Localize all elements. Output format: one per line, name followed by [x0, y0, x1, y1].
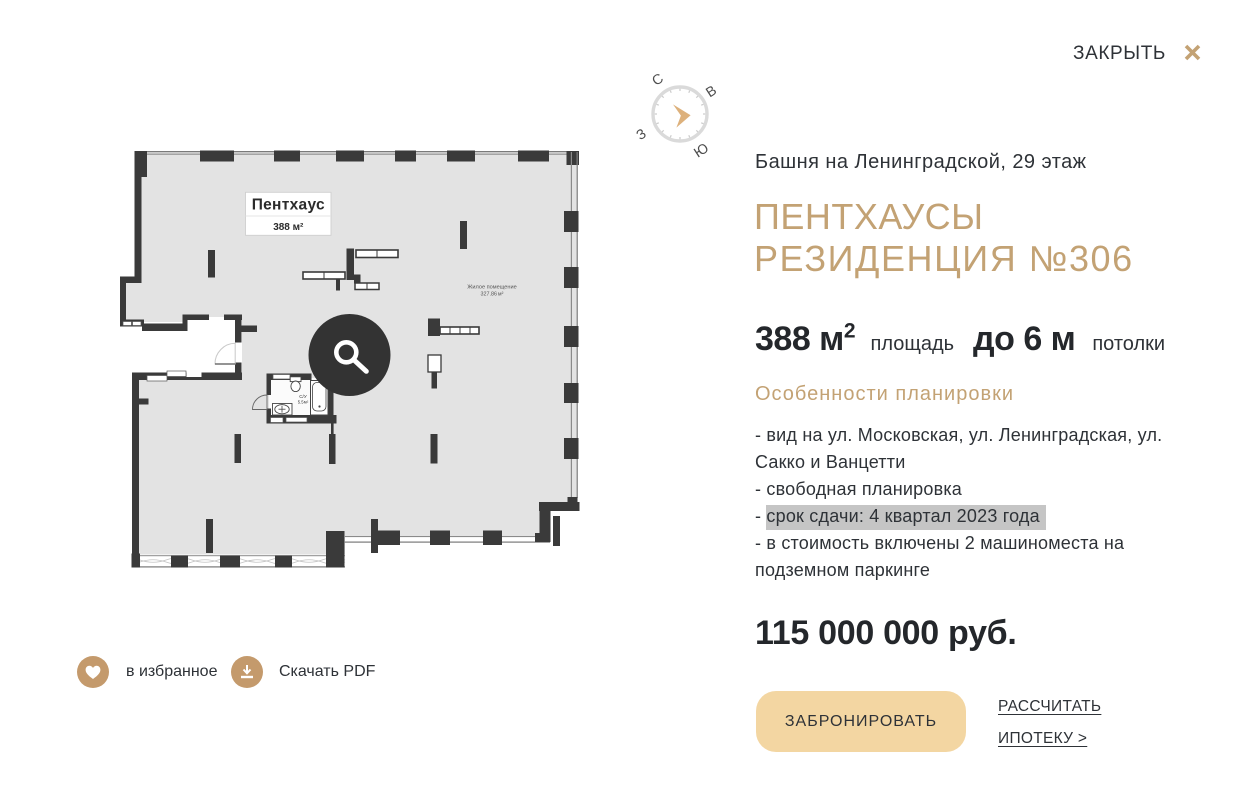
svg-text:С: С — [649, 70, 666, 89]
svg-text:5.5 м²: 5.5 м² — [298, 400, 309, 405]
svg-text:Жилое помещение: Жилое помещение — [467, 285, 516, 291]
svg-text:Пентхаус: Пентхаус — [252, 197, 325, 214]
svg-text:С/У: С/У — [299, 394, 307, 399]
svg-text:З: З — [633, 125, 649, 143]
svg-text:Ю: Ю — [691, 139, 712, 160]
svg-text:388 м²: 388 м² — [273, 222, 304, 233]
svg-text:327.86 м²: 327.86 м² — [481, 292, 504, 298]
svg-text:В: В — [703, 82, 720, 101]
